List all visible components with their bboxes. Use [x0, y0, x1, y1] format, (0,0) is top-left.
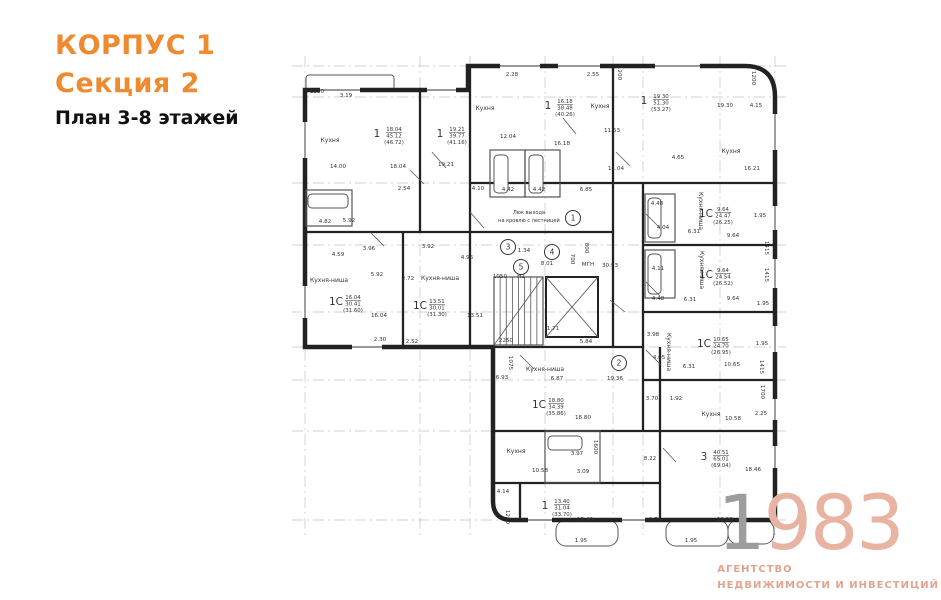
dim-label: 4.65 [672, 155, 685, 161]
dim-label: 9.64 [727, 233, 740, 239]
apartment-type: 1С [697, 338, 711, 350]
apartment-type: 1С [699, 208, 713, 220]
dim-label: 14.00 [330, 164, 346, 170]
room-label: Кухня [591, 103, 610, 110]
apartment-area-with-balcony: (31.30) [427, 312, 447, 318]
dim-label: 5.92 [343, 218, 355, 224]
dim-label: 3.09 [577, 469, 590, 475]
dim-label: 1.95 [685, 538, 698, 544]
apartment-area-with-balcony: (46.72) [384, 140, 404, 146]
apartment-area-with-balcony: (26.95) [711, 350, 731, 356]
dim-label: 4.11 [652, 266, 665, 272]
bathtub [548, 436, 582, 450]
dim-label: 3.19 [340, 93, 353, 99]
dim-label: 10.58 [725, 416, 741, 422]
room-label: Кухня-ниша [310, 277, 348, 284]
bathtub [308, 194, 348, 208]
dim-label: 9.76 [649, 517, 662, 523]
dim-label: 1075 [507, 356, 513, 371]
apartment-area-living: 16.04 [345, 295, 361, 301]
axis-marker-number: 5 [519, 263, 524, 272]
dim-label: 12.04 [500, 134, 516, 140]
apartment-area-total: 30.41 [345, 302, 360, 308]
apartment-area-with-balcony: (41.16) [447, 140, 467, 146]
door-leaf [410, 170, 424, 184]
dim-label: 4.48 [652, 296, 665, 302]
dim-label: 4.42 [533, 187, 545, 193]
dim-label: 1.95 [575, 538, 588, 544]
bathtub [648, 254, 661, 294]
room-label: Кухня-ниша [421, 275, 459, 282]
dim-label: МГН [582, 262, 594, 268]
dim-label: 8.22 [644, 456, 656, 462]
door-leaf [470, 212, 484, 228]
dim-label: 6.31 [684, 297, 697, 303]
dim-label: 16.18 [554, 141, 570, 147]
door-leaf [563, 118, 576, 134]
dim-label: 5.92 [371, 272, 383, 278]
room-label: Кухня [507, 448, 526, 455]
apartment-type: 1 [641, 95, 648, 107]
dim-label: 3.97 [571, 451, 584, 457]
dim-label: 3.98 [647, 332, 660, 338]
dim-label: 18.04 [390, 164, 406, 170]
dim-label: 1415 [763, 241, 769, 256]
dim-label: 6.31 [683, 364, 696, 370]
apartment-area-total: 31.04 [554, 506, 570, 512]
apartment-type: 3 [701, 451, 708, 463]
apartment-area-total: 24.54 [715, 275, 731, 281]
note-label: на кровлю с лестницей [498, 217, 560, 224]
dim-label: 1050 [493, 274, 508, 280]
apartment-type: 1 [545, 100, 552, 112]
apartment-area-living: 40.51 [713, 450, 728, 456]
apartment-area-living: 19.30 [653, 94, 669, 100]
apartment-area-living: 13.51 [429, 299, 444, 305]
dim-label: 1250 [310, 89, 325, 95]
dim-label: 2.28 [506, 72, 519, 78]
dim-label: 18.80 [575, 415, 591, 421]
logo-line2: НЕДВИЖИМОСТИ И ИНВЕСТИЦИЙ [717, 580, 939, 593]
note-label: Люк выхода [513, 210, 545, 216]
room-label: Кухня-ниша [526, 366, 564, 373]
apartment-type: 1С [699, 269, 713, 281]
apartment-area-living: 16.18 [557, 99, 573, 105]
dim-label: 4.96 [461, 255, 474, 261]
dim-label: 30.93 [602, 263, 618, 269]
dim-label: 4.48 [651, 201, 664, 207]
apartment-area-total: 45.12 [386, 134, 401, 140]
dim-label: 2.25 [755, 411, 768, 417]
apartment-area-with-balcony: (26.52) [713, 281, 733, 287]
dim-label: 2.30 [374, 337, 387, 343]
apartment-area-total: 24.70 [713, 344, 729, 350]
dim-label: 11.53 [604, 128, 620, 134]
dim-label: 2.72 [402, 276, 414, 282]
apartment-area-with-balcony: (26.25) [713, 220, 733, 226]
room-label: Кухня-ниша [665, 333, 672, 371]
dim-label: 4.82 [319, 219, 331, 225]
dim-label: 1.95 [756, 341, 769, 347]
apartment-area-total: 38.48 [557, 106, 573, 112]
dim-label: 1.92 [670, 396, 682, 402]
apartment-area-total: 34.39 [548, 405, 564, 411]
dim-label: 1700 [759, 385, 765, 400]
apartment-area-total: 39.77 [449, 134, 464, 140]
room-label: Кухня [476, 105, 495, 112]
apartment-area-with-balcony: (35.86) [546, 411, 566, 417]
logo-digits-rest: 983 [764, 478, 903, 567]
apartment-type: 1 [374, 128, 381, 140]
apartment-area-with-balcony: (69.04) [711, 463, 731, 469]
axis-marker-number: 2 [617, 359, 622, 368]
dim-label: 19.21 [438, 162, 454, 168]
dim-label: 4.04 [657, 225, 670, 231]
dim-label: 6.87 [551, 376, 564, 382]
apartment-type: 1 [437, 128, 444, 140]
dim-label: 4.42 [502, 187, 514, 193]
room-label: Кухня [321, 137, 340, 144]
dim-label: 4.14 [497, 489, 510, 495]
dim-label: 18.46 [745, 467, 761, 473]
door-leaf [616, 152, 630, 166]
dim-label: 19.36 [607, 376, 623, 382]
page: КОРПУС 1 Секция 2 План 3-8 этажей 12503.… [0, 0, 941, 600]
apartment-area-living: 9.64 [717, 268, 730, 274]
dim-label: 6.93 [496, 375, 509, 381]
apartment-area-living: 13.40 [554, 499, 570, 505]
dim-label: 1200 [750, 71, 756, 86]
dim-label: 2.55 [587, 72, 600, 78]
apartment-area-total: 24.47 [715, 214, 730, 220]
apartment-area-total: 30.01 [429, 306, 444, 312]
apartment-area-with-balcony: (31.60) [343, 308, 363, 314]
dim-label: 10.65 [724, 362, 740, 368]
dim-label: 16.21 [744, 166, 760, 172]
dim-label: 1415 [758, 360, 764, 375]
dim-label: 6.85 [580, 187, 593, 193]
apartment-area-with-balcony: (40.26) [555, 112, 575, 118]
apartment-type: 1С [329, 296, 343, 308]
logo-digit-one: 1 [717, 478, 763, 567]
apartment-area-living: 9.64 [717, 207, 730, 213]
dim-label: 1.34 [518, 248, 531, 254]
room-label: Кухня [722, 148, 741, 155]
dim-label: 4.59 [332, 252, 345, 258]
door-leaf [663, 448, 676, 462]
dim-label: 1600 [592, 440, 598, 455]
dim-label: 2.52 [406, 339, 418, 345]
dim-label: 19.30 [717, 103, 733, 109]
apartment-area-living: 18.80 [548, 398, 564, 404]
dim-label: 1200 [504, 510, 510, 525]
dim-label: 10.58 [532, 468, 548, 474]
dim-label: 2.54 [398, 186, 411, 192]
apartment-area-total: 51.30 [653, 101, 669, 107]
dim-label: 8.01 [541, 261, 554, 267]
dim-label: 1.95 [754, 213, 767, 219]
dim-label: 800 [583, 243, 589, 254]
dim-label: 4.15 [750, 103, 763, 109]
dim-label: 700 [569, 254, 575, 265]
dim-label: 16.04 [371, 313, 387, 319]
dim-label: 1200 [616, 66, 622, 81]
dim-label: 4.10 [472, 186, 485, 192]
apartment-type: 1С [532, 399, 546, 411]
apartment-type: 1С [413, 300, 427, 312]
dim-label: 3.92 [422, 244, 434, 250]
dim-label: 13.51 [467, 313, 483, 319]
apartment-area-total: 65.01 [713, 457, 728, 463]
apartment-area-living: 10.65 [713, 337, 728, 343]
axis-marker-number: 1 [571, 214, 576, 223]
dim-label: 1.95 [757, 301, 770, 307]
apartment-area-living: 19.21 [449, 127, 464, 133]
dim-label: 5.84 [580, 339, 593, 345]
logo-digits: 1983 [717, 485, 939, 561]
dim-label: 11.04 [608, 166, 624, 172]
dim-label: 3.96 [363, 246, 376, 252]
dim-label: 3.70 [646, 396, 659, 402]
dim-label: 9.64 [727, 296, 740, 302]
axis-marker-number: 4 [550, 248, 555, 257]
room-label: Кухня [702, 411, 721, 418]
door-leaf [370, 232, 384, 246]
dim-label: 1415 [763, 268, 769, 283]
axis-marker-number: 3 [506, 243, 511, 252]
agency-logo: 1983 АГЕНТСТВО НЕДВИЖИМОСТИ И ИНВЕСТИЦИЙ [717, 485, 939, 592]
dim-label: 2250 [499, 338, 514, 344]
dim-label: 1.71 [547, 326, 560, 332]
dim-label: 4.05 [653, 355, 666, 361]
apartment-area-with-balcony: (53.27) [651, 107, 671, 113]
apartment-type: 1 [542, 500, 549, 512]
apartment-area-living: 18.04 [386, 127, 402, 133]
apartment-area-with-balcony: (33.70) [552, 512, 572, 518]
dim-label: 15.40 [577, 517, 593, 523]
